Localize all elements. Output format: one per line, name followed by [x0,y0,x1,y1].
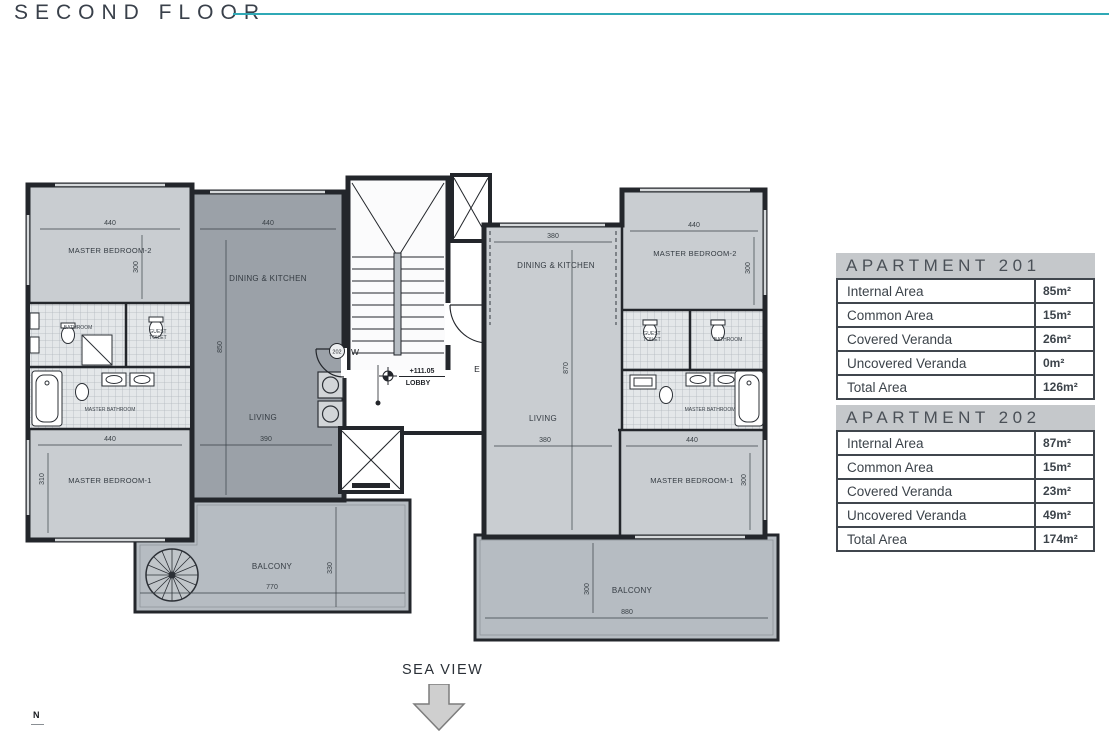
dim-dk-height-202: 850 [217,341,224,353]
dim-balcony-width-202: 770 [266,584,278,591]
dim-living-width-202: 390 [260,436,272,443]
dim-mb2-height-201: 300 [745,262,752,274]
dim-balcony-height-202: 330 [327,562,334,574]
room-label-balcony-201: BALCONY [612,586,653,595]
dim-mb1-height-201: 300 [741,474,748,486]
room-label-master-bedroom-1-201: MASTER BEDROOM-1 [650,476,734,485]
dim-mb2-width-202: 440 [104,220,116,227]
dim-mb2-height-202: 300 [133,261,140,273]
table-row: Uncovered Veranda 0m² [838,350,1093,374]
dim-living-height-201: 870 [563,362,570,374]
unit-202-orientation: W [351,347,359,357]
unit-202-number: 202 [332,350,341,356]
row-value: 87m² [1034,432,1093,454]
apartment-201-table-title: APARTMENT 201 [836,253,1095,278]
table-row: Covered Veranda 26m² [838,326,1093,350]
table-row: Total Area 126m² [838,374,1093,398]
sea-view-arrow-icon [412,684,470,733]
row-label: Total Area [838,380,1034,395]
row-value: 126m² [1034,376,1093,398]
apartment-202-table-title: APARTMENT 202 [836,405,1095,430]
table-row: Internal Area 85m² [838,280,1093,302]
row-value: 23m² [1034,480,1093,502]
row-label: Common Area [838,308,1034,323]
north-indicator-label: N [33,710,40,720]
dim-mb1-width-202: 440 [104,436,116,443]
row-label: Covered Veranda [838,332,1034,347]
floor-plan-drawing: 440 300 MASTER BEDROOM-2 440 850 DINING … [10,165,810,665]
dim-mb1-height-202: 310 [39,473,46,485]
row-value: 26m² [1034,328,1093,350]
dim-living-width-201: 380 [539,437,551,444]
row-label: Total Area [838,532,1034,547]
sea-view-label: SEA VIEW [402,662,483,678]
lobby-level-value: +111.05 [410,368,435,375]
row-label: Internal Area [838,436,1034,451]
apartment-201-plan: 380 DINING & KITCHEN 870 440 300 MASTER … [475,190,778,640]
room-label-master-bedroom-2-201: MASTER BEDROOM-2 [653,249,737,258]
table-row: Covered Veranda 23m² [838,478,1093,502]
page-title: SECOND FLOOR [14,1,266,25]
table-row: Total Area 174m² [838,526,1093,550]
room-label-dining-kitchen-201: DINING & KITCHEN [517,261,595,270]
room-label-living-201: LIVING [529,414,557,423]
room-label-bathroom-202: BATHROOM [64,325,93,331]
dim-mb1-width-201: 440 [686,437,698,444]
room-label-master-bedroom-2-202: MASTER BEDROOM-2 [68,246,152,255]
row-label: Internal Area [838,284,1034,299]
living-dining-201 [484,225,622,537]
row-label: Covered Veranda [838,484,1034,499]
unit-201-orientation: E [474,364,480,374]
table-row: Common Area 15m² [838,454,1093,478]
dim-dk-width-201: 380 [547,233,559,240]
accent-divider-line [233,13,1109,15]
room-label-guest-toilet-201-l2: TOILET [643,337,660,343]
row-value: 15m² [1034,304,1093,326]
door-opening-corridor [445,303,452,345]
floor-plan-sheet: SECOND FLOOR [0,0,1109,733]
row-value: 174m² [1034,528,1093,550]
row-label: Uncovered Veranda [838,356,1034,371]
room-label-guest-toilet-202-l2: TOILET [149,335,166,341]
lobby-label: LOBBY [406,380,431,387]
north-indicator-icon [31,724,44,729]
row-label: Common Area [838,460,1034,475]
room-label-master-bedroom-1-202: MASTER BEDROOM-1 [68,476,152,485]
table-row: Common Area 15m² [838,302,1093,326]
apartment-202-table: APARTMENT 202 Internal Area 87m² Common … [836,405,1095,552]
area-tables: APARTMENT 201 Internal Area 85m² Common … [836,253,1095,552]
living-dining-wing-202 [192,192,344,500]
row-value: 85m² [1034,280,1093,302]
row-value: 15m² [1034,456,1093,478]
room-label-bathroom-201: BATHROOM [714,337,743,343]
room-label-dining-kitchen-202: DINING & KITCHEN [229,274,307,283]
row-value: 0m² [1034,352,1093,374]
room-label-balcony-202: BALCONY [252,562,293,571]
light-well-shaft [340,428,402,492]
table-row: Internal Area 87m² [838,432,1093,454]
row-label: Uncovered Veranda [838,508,1034,523]
row-value: 49m² [1034,504,1093,526]
dim-balcony-width-201: 880 [621,609,633,616]
room-label-master-bathroom-202: MASTER BATHROOM [85,407,136,413]
table-row: Uncovered Veranda 49m² [838,502,1093,526]
dim-dk-width-202: 440 [262,220,274,227]
apartment-201-table: APARTMENT 201 Internal Area 85m² Common … [836,253,1095,400]
room-label-master-bathroom-201: MASTER BATHROOM [685,407,736,413]
dim-balcony-height-201: 300 [584,583,591,595]
room-label-living-202: LIVING [249,413,277,422]
dim-mb2-width-201: 440 [688,222,700,229]
